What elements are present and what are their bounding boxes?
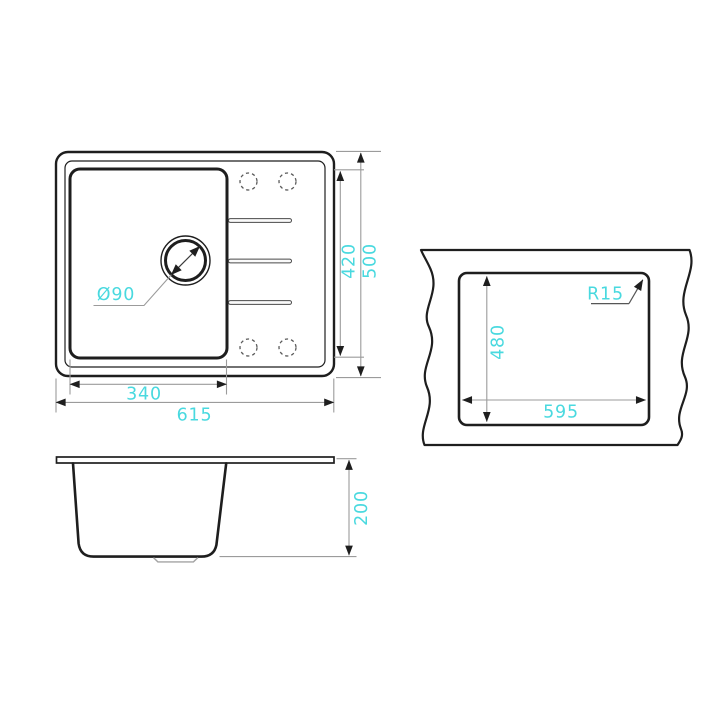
dim-label-total-depth: 500 [360,243,380,279]
dim-label-inner-depth: 420 [339,243,359,279]
sink-dimension-drawing: Ø90 420 500 340 [0,0,720,720]
dim-label-cutout-height: 480 [488,324,508,360]
top-view: Ø90 420 500 340 [56,151,381,425]
drainboard-groove [229,259,292,263]
dim-label-drain-diameter: Ø90 [97,285,135,305]
bowl-outline [70,169,227,358]
drainboard-groove [229,219,292,223]
drain-fitting-profile [154,558,198,562]
rim-profile [57,457,335,463]
dimension-total-width: 615 [56,379,334,426]
dim-label-bowl-width: 340 [126,385,162,405]
drainboard-groove [229,301,292,305]
cutout-view: 480 595 R15 [421,250,691,445]
dim-label-cutout-width: 595 [543,403,579,423]
dim-label-total-width: 615 [177,406,213,426]
dimension-bowl-depth: 200 [220,459,372,557]
bowl-profile [73,463,226,556]
dim-label-corner-radius: R15 [587,285,624,305]
side-view: 200 [57,457,372,562]
dim-label-bowl-depth: 200 [352,490,372,526]
technical-drawing-page: Ø90 420 500 340 [0,0,720,720]
